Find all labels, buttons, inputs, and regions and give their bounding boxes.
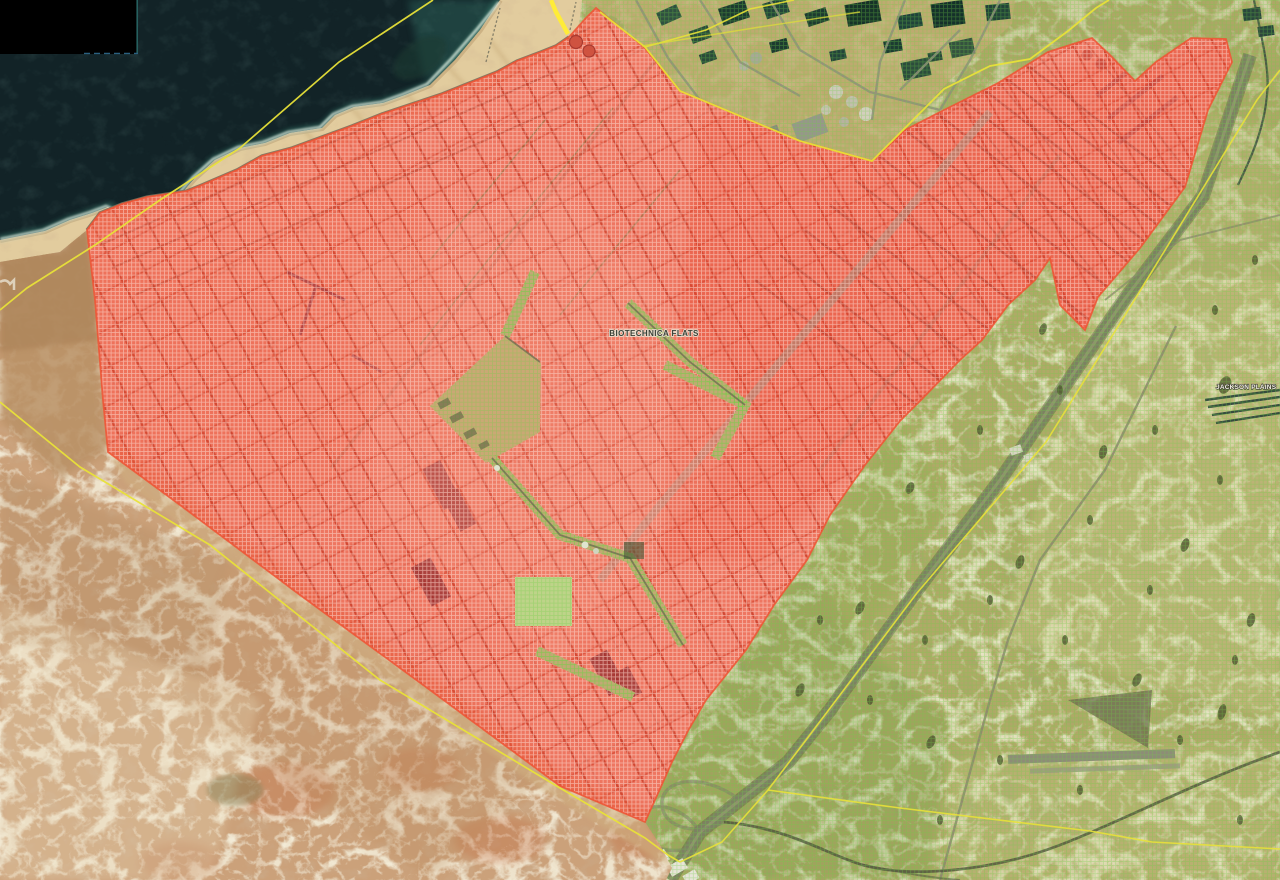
svg-text:JACKSON PLAINS: JACKSON PLAINS [1216, 384, 1277, 391]
svg-text:BIOTECHNICA FLATS: BIOTECHNICA FLATS [609, 329, 699, 338]
